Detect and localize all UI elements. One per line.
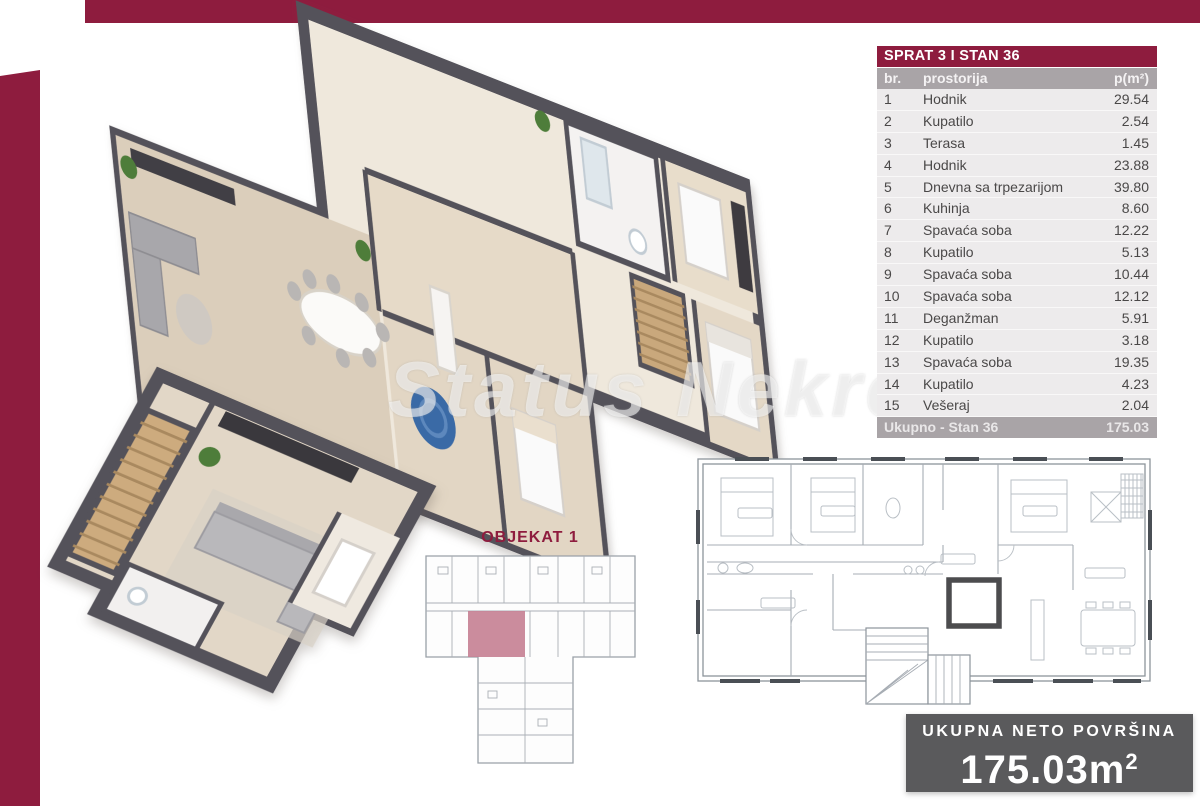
table-title: SPRAT 3 I STAN 36	[877, 46, 1157, 67]
row-area: 29.54	[1097, 89, 1157, 110]
table-footer: Ukupno - Stan 36 175.03	[877, 417, 1157, 438]
badge-title: UKUPNA NETO POVRŠINA	[906, 723, 1193, 741]
row-area: 3.18	[1097, 330, 1157, 351]
row-room: Spavaća soba	[918, 220, 1097, 241]
row-room: Kupatilo	[918, 111, 1097, 132]
table-row: 5 Dnevna sa trpezarijom 39.80	[877, 177, 1157, 199]
row-area: 2.04	[1097, 395, 1157, 416]
table-row: 12 Kupatilo 3.18	[877, 330, 1157, 352]
row-number: 13	[877, 352, 918, 373]
listing-floorplan-page: Status Nekret SPRAT 3 I STAN 36 br. pros…	[0, 0, 1200, 806]
area-unit: m	[1089, 748, 1126, 792]
total-area-badge: UKUPNA NETO POVRŠINA 175.03m2	[906, 714, 1193, 792]
row-number: 3	[877, 133, 918, 154]
table-row: 6 Kuhinja 8.60	[877, 198, 1157, 220]
table-row: 8 Kupatilo 5.13	[877, 242, 1157, 264]
row-room: Spavaća soba	[918, 264, 1097, 285]
footer-total: 175.03	[1097, 417, 1157, 438]
row-number: 2	[877, 111, 918, 132]
row-room: Kuhinja	[918, 198, 1097, 219]
table-row: 9 Spavaća soba 10.44	[877, 264, 1157, 286]
floorplan-2d	[693, 450, 1160, 750]
row-number: 12	[877, 330, 918, 351]
row-area: 12.12	[1097, 286, 1157, 307]
table-row: 13 Spavaća soba 19.35	[877, 352, 1157, 374]
row-number: 4	[877, 155, 918, 176]
badge-value: 175.03m2	[906, 741, 1193, 791]
row-room: Kupatilo	[918, 374, 1097, 395]
footer-label: Ukupno - Stan 36	[877, 417, 1097, 438]
row-room: Deganžman	[918, 308, 1097, 329]
table-row: 3 Terasa 1.45	[877, 133, 1157, 155]
row-area: 8.60	[1097, 198, 1157, 219]
table-column-header: br. prostorija p(m²)	[877, 68, 1157, 89]
table-row: 4 Hodnik 23.88	[877, 155, 1157, 177]
table-row: 14 Kupatilo 4.23	[877, 374, 1157, 396]
row-room: Spavaća soba	[918, 286, 1097, 307]
room-area-table: SPRAT 3 I STAN 36 br. prostorija p(m²) 1…	[877, 46, 1157, 438]
table-row: 11 Deganžman 5.91	[877, 308, 1157, 330]
row-room: Spavaća soba	[918, 352, 1097, 373]
row-area: 4.23	[1097, 374, 1157, 395]
table-body: 1 Hodnik 29.54 2 Kupatilo 2.54 3 Terasa …	[877, 89, 1157, 417]
col-room-label: prostorija	[918, 70, 1097, 87]
row-area: 12.22	[1097, 220, 1157, 241]
row-area: 10.44	[1097, 264, 1157, 285]
row-room: Vešeraj	[918, 395, 1097, 416]
row-number: 1	[877, 89, 918, 110]
row-number: 5	[877, 177, 918, 198]
table-row: 15 Vešeraj 2.04	[877, 395, 1157, 417]
row-room: Kupatilo	[918, 242, 1097, 263]
row-number: 6	[877, 198, 918, 219]
row-area: 1.45	[1097, 133, 1157, 154]
row-area: 39.80	[1097, 177, 1157, 198]
row-number: 15	[877, 395, 918, 416]
row-number: 14	[877, 374, 918, 395]
table-row: 2 Kupatilo 2.54	[877, 111, 1157, 133]
table-row: 10 Spavaća soba 12.12	[877, 286, 1157, 308]
building-outline	[426, 556, 635, 763]
row-number: 9	[877, 264, 918, 285]
row-area: 23.88	[1097, 155, 1157, 176]
row-room: Hodnik	[918, 155, 1097, 176]
row-area: 5.91	[1097, 308, 1157, 329]
row-area: 5.13	[1097, 242, 1157, 263]
row-room: Hodnik	[918, 89, 1097, 110]
row-number: 8	[877, 242, 918, 263]
table-row: 7 Spavaća soba 12.22	[877, 220, 1157, 242]
table-row: 1 Hodnik 29.54	[877, 89, 1157, 111]
area-unit-sup: 2	[1125, 749, 1138, 774]
row-number: 10	[877, 286, 918, 307]
row-number: 11	[877, 308, 918, 329]
row-room: Kupatilo	[918, 330, 1097, 351]
row-area: 2.54	[1097, 111, 1157, 132]
highlighted-unit	[468, 611, 525, 657]
objekat-label: OBJEKAT 1	[440, 529, 620, 547]
col-num-label: br.	[877, 70, 918, 87]
building-key-plan	[418, 551, 643, 769]
row-number: 7	[877, 220, 918, 241]
area-number: 175.03	[960, 748, 1088, 792]
row-area: 19.35	[1097, 352, 1157, 373]
col-area-label: p(m²)	[1097, 70, 1157, 87]
row-room: Terasa	[918, 133, 1097, 154]
row-room: Dnevna sa trpezarijom	[918, 177, 1097, 198]
